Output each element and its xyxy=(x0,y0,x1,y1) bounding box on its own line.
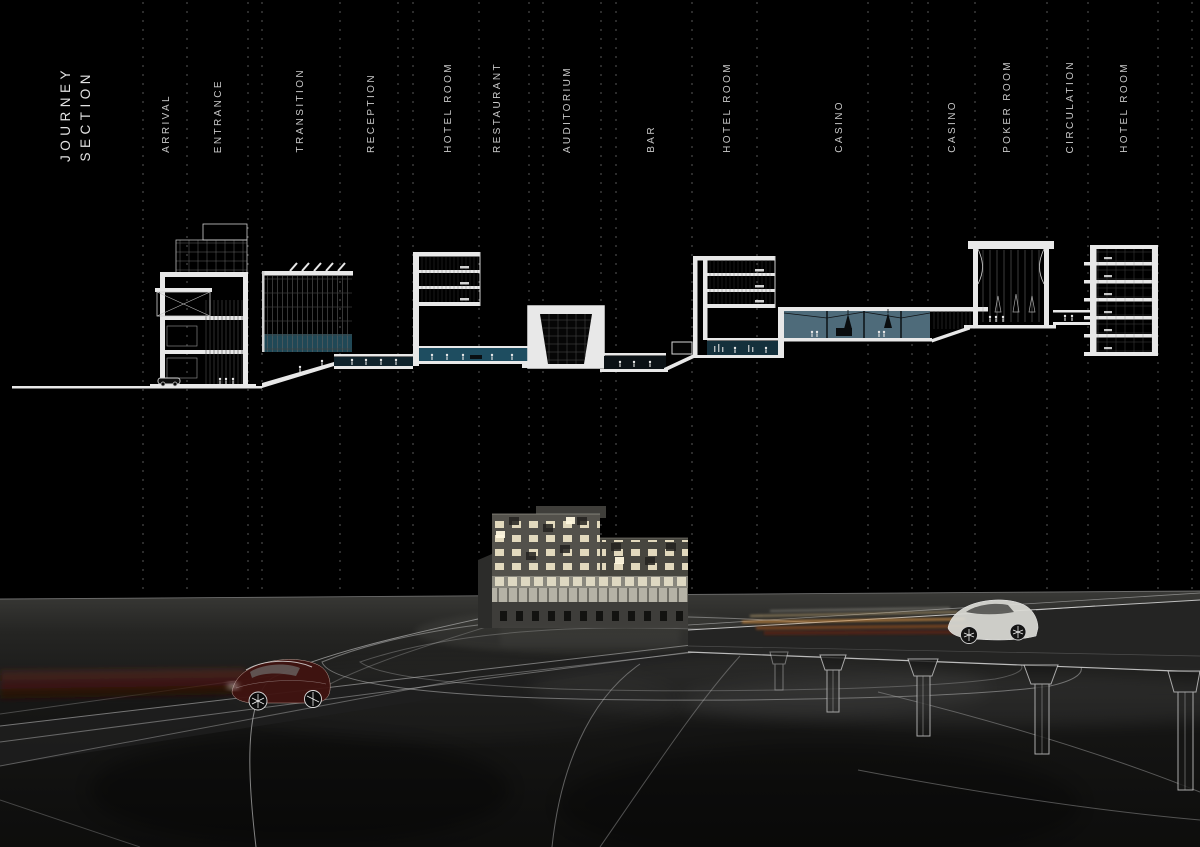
board-title-journey: JOURNEY xyxy=(56,0,74,162)
section-label-poker-room: POKER ROOM xyxy=(1000,0,1015,153)
presentation-board: JOURNEY SECTION ARRIVAL ENTRANCE TRANSIT… xyxy=(0,0,1200,847)
section-linework xyxy=(12,224,1158,389)
auditorium xyxy=(522,306,610,368)
section-label-hotel-room-2: HOTEL ROOM xyxy=(720,0,735,153)
section-label-restaurant: RESTAURANT xyxy=(490,0,505,153)
section-label-circulation: CIRCULATION xyxy=(1063,0,1078,153)
section-label-hotel-room-3: HOTEL ROOM xyxy=(1117,0,1132,153)
restaurant-band xyxy=(413,346,528,364)
artwork-svg xyxy=(0,0,1200,847)
entry-ramp xyxy=(262,362,334,388)
section-label-arrival: ARRIVAL xyxy=(159,0,174,153)
board-title-section: SECTION xyxy=(76,0,94,162)
hotel-tower-right xyxy=(1084,245,1158,356)
title-line-1: JOURNEY xyxy=(58,66,73,162)
section-label-casino-2: CASINO xyxy=(945,0,960,153)
transition-block xyxy=(262,263,353,388)
section-label-reception: RECEPTION xyxy=(364,0,379,153)
reception-walkway xyxy=(334,354,413,369)
section-label-entrance: ENTRANCE xyxy=(211,0,226,153)
section-label-hotel-room-1: HOTEL ROOM xyxy=(441,0,456,153)
arrival-tower xyxy=(150,224,256,389)
section-label-auditorium: AUDITORIUM xyxy=(560,0,575,153)
section-label-bar: BAR xyxy=(644,0,659,153)
poker-room xyxy=(964,241,1056,329)
casino-band xyxy=(778,307,988,358)
section-label-transition: TRANSITION xyxy=(293,0,308,153)
section-label-casino-1: CASINO xyxy=(832,0,847,153)
perspective-render xyxy=(0,506,1200,847)
title-line-2: SECTION xyxy=(78,70,93,162)
